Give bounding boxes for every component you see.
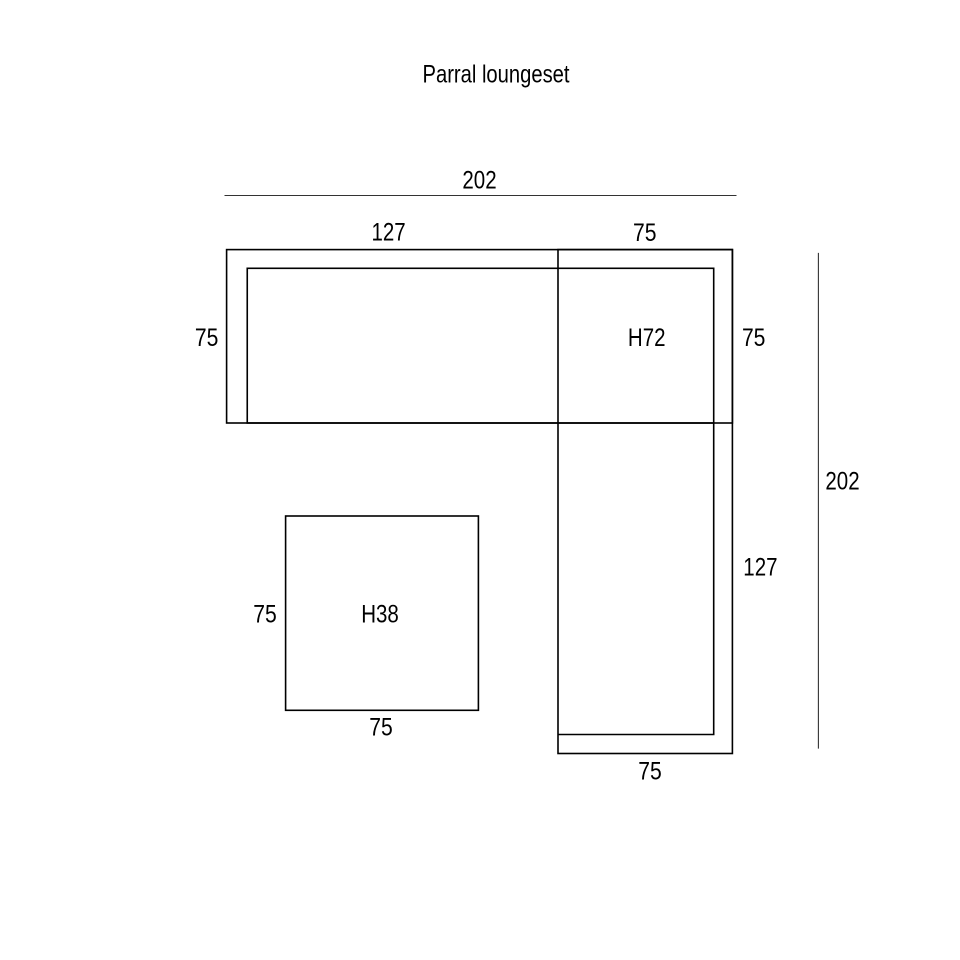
svg-text:75: 75 <box>633 219 657 247</box>
svg-text:H72: H72 <box>628 324 666 352</box>
svg-text:75: 75 <box>195 324 219 352</box>
svg-text:75: 75 <box>253 601 277 629</box>
svg-text:75: 75 <box>742 324 766 352</box>
svg-text:75: 75 <box>369 714 393 742</box>
svg-text:127: 127 <box>372 219 406 247</box>
svg-text:127: 127 <box>743 554 777 582</box>
svg-text:202: 202 <box>462 167 496 195</box>
svg-text:Parral loungeset: Parral loungeset <box>423 61 570 89</box>
svg-text:H38: H38 <box>361 601 399 629</box>
svg-text:75: 75 <box>638 758 662 786</box>
svg-text:202: 202 <box>825 468 859 496</box>
